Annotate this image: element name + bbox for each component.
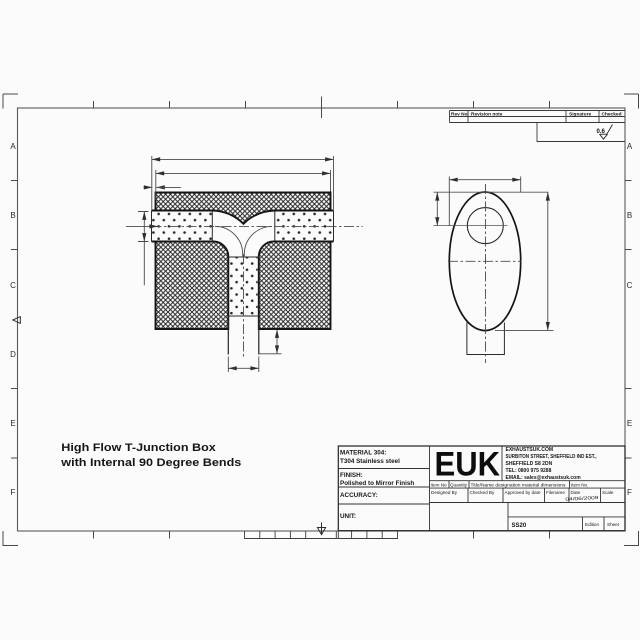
svg-text:MATERIAL 304:: MATERIAL 304:	[340, 450, 386, 457]
svg-text:C: C	[10, 281, 16, 290]
svg-text:SURBITON STREET, SHEFFIELD IND: SURBITON STREET, SHEFFIELD IND EST.,	[506, 454, 598, 460]
svg-text:SS20: SS20	[512, 523, 527, 529]
svg-text:Polished to Mirror Finish: Polished to Mirror Finish	[340, 480, 414, 487]
svg-text:ACCURACY:: ACCURACY:	[340, 492, 378, 499]
svg-text:EUK: EUK	[435, 446, 501, 484]
svg-text:F: F	[627, 488, 632, 497]
svg-text:EXHAUSTSUK.COM: EXHAUSTSUK.COM	[506, 447, 554, 453]
svg-text:SHEFFIELD S8 2DN: SHEFFIELD S8 2DN	[506, 461, 553, 467]
svg-text:Scale: Scale	[602, 490, 614, 495]
svg-text:EMAIL: sales@exhaustsuk.com: EMAIL: sales@exhaustsuk.com	[506, 475, 582, 481]
svg-text:E: E	[627, 419, 632, 428]
svg-text:Item No.: Item No.	[571, 482, 588, 487]
svg-text:T304 Stainless steel: T304 Stainless steel	[340, 458, 400, 465]
svg-text:Edition: Edition	[585, 522, 599, 527]
svg-text:A: A	[627, 142, 633, 151]
svg-text:Sheet: Sheet	[607, 522, 620, 527]
svg-text:B: B	[10, 211, 15, 220]
svg-text:High Flow T-Junction Box: High Flow T-Junction Box	[61, 442, 216, 454]
svg-text:C: C	[627, 281, 633, 290]
svg-text:Title/Name designation materia: Title/Name designation material dimensio…	[471, 482, 567, 487]
svg-text:Approved by date: Approved by date	[505, 490, 541, 495]
svg-text:TEL: 0800 975 9288: TEL: 0800 975 9288	[506, 468, 552, 474]
svg-text:B: B	[627, 211, 632, 220]
svg-text:Signature: Signature	[569, 111, 591, 117]
svg-text:Rev No: Rev No	[451, 111, 468, 117]
svg-text:Designed By: Designed By	[431, 490, 458, 495]
svg-text:UNIT:: UNIT:	[340, 513, 356, 520]
svg-text:with Internal 90 Degree Bends: with Internal 90 Degree Bends	[60, 457, 241, 469]
svg-text:Checked: Checked	[602, 111, 622, 117]
svg-text:D: D	[10, 350, 16, 359]
svg-text:Revision note: Revision note	[471, 111, 503, 117]
svg-text:Checked By: Checked By	[470, 490, 495, 495]
svg-text:Quantity: Quantity	[450, 482, 468, 487]
svg-text:Date: Date	[571, 490, 581, 495]
svg-text:E: E	[10, 419, 15, 428]
svg-text:FINISH:: FINISH:	[340, 472, 363, 479]
svg-text:F: F	[11, 488, 16, 497]
svg-text:A: A	[10, 142, 16, 151]
svg-text:Filename: Filename	[546, 490, 565, 495]
svg-text:Item No: Item No	[431, 482, 448, 487]
